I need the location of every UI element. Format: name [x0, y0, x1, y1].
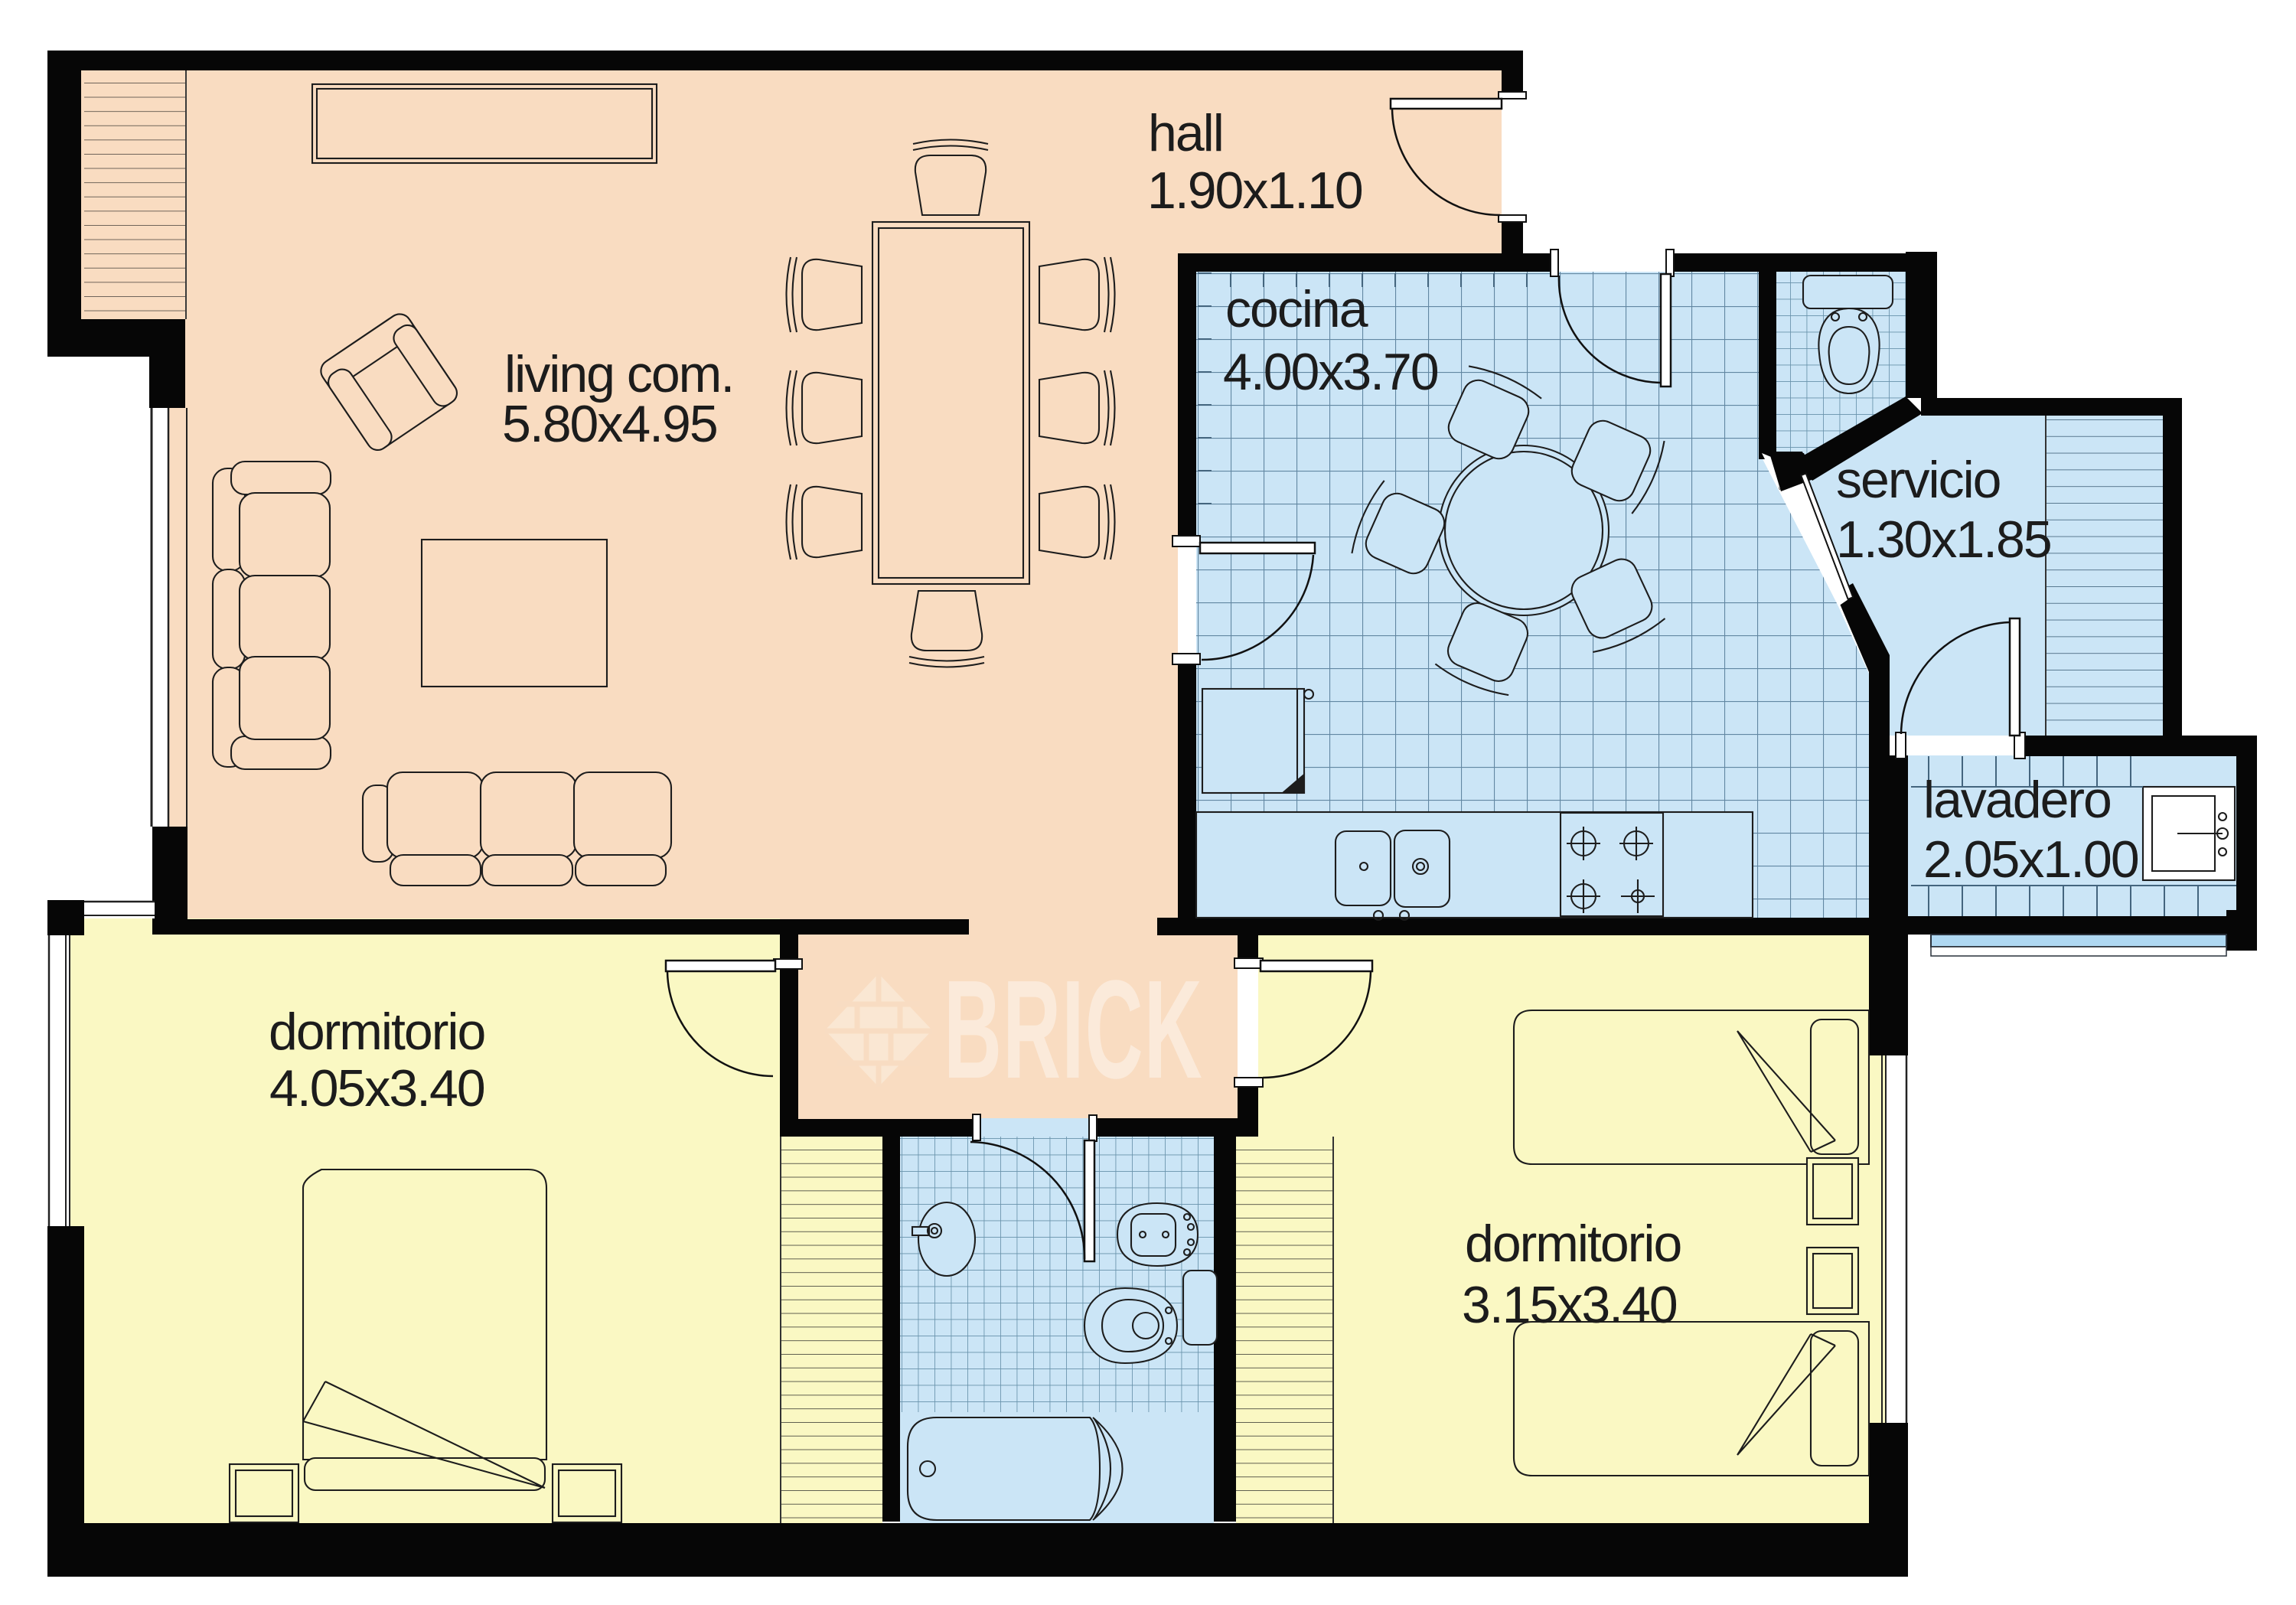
svg-text:2.05x1.00: 2.05x1.00: [1923, 830, 2138, 889]
svg-text:4.00x3.70: 4.00x3.70: [1223, 343, 1438, 401]
svg-text:1.90x1.10: 1.90x1.10: [1147, 161, 1362, 220]
svg-text:cocina: cocina: [1225, 280, 1368, 338]
svg-text:dormitorio: dormitorio: [269, 1003, 484, 1061]
svg-text:dormitorio: dormitorio: [1465, 1215, 1681, 1273]
svg-text:servicio: servicio: [1836, 451, 2001, 509]
svg-text:lavadero: lavadero: [1923, 771, 2111, 829]
svg-text:5.80x4.95: 5.80x4.95: [502, 395, 717, 453]
svg-text:BRICK: BRICK: [944, 951, 1203, 1108]
svg-text:hall: hall: [1148, 104, 1223, 162]
svg-text:1.30x1.85: 1.30x1.85: [1836, 511, 2051, 569]
svg-text:3.15x3.40: 3.15x3.40: [1462, 1276, 1677, 1334]
svg-text:4.05x3.40: 4.05x3.40: [269, 1059, 484, 1117]
